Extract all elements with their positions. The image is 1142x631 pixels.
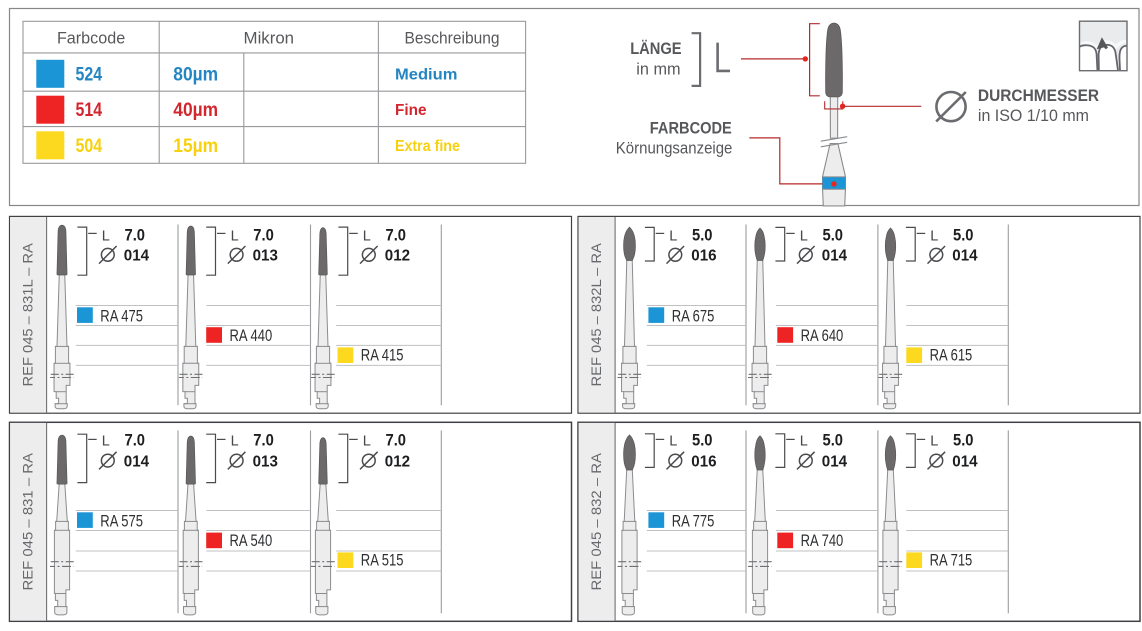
svg-text:RA 515: RA 515 xyxy=(361,550,404,569)
svg-text:016: 016 xyxy=(691,248,716,265)
svg-text:5.0: 5.0 xyxy=(953,431,974,449)
svg-text:013: 013 xyxy=(253,453,278,470)
svg-text:L: L xyxy=(102,433,110,449)
svg-text:504: 504 xyxy=(76,135,103,157)
svg-text:Körnungsanzeige: Körnungsanzeige xyxy=(616,140,733,158)
svg-text:RA 775: RA 775 xyxy=(672,511,715,530)
svg-text:Fine: Fine xyxy=(395,102,427,119)
svg-text:Extra fine: Extra fine xyxy=(395,138,460,155)
svg-text:L: L xyxy=(930,433,938,449)
svg-text:REF 045 – 832L – RA: REF 045 – 832L – RA xyxy=(589,242,604,386)
svg-text:514: 514 xyxy=(76,99,103,121)
svg-text:5.0: 5.0 xyxy=(692,226,713,244)
svg-text:FARBCODE: FARBCODE xyxy=(650,120,732,138)
svg-text:L: L xyxy=(363,433,371,449)
svg-text:5.0: 5.0 xyxy=(692,431,713,449)
svg-text:L: L xyxy=(800,228,808,244)
svg-text:L: L xyxy=(102,228,110,244)
svg-text:Mikron: Mikron xyxy=(244,30,295,48)
svg-text:L: L xyxy=(669,228,677,244)
svg-text:7.0: 7.0 xyxy=(125,431,146,449)
svg-text:Farbcode: Farbcode xyxy=(57,30,125,48)
svg-text:014: 014 xyxy=(822,453,847,470)
svg-text:016: 016 xyxy=(691,453,716,470)
svg-text:RA 575: RA 575 xyxy=(100,511,143,530)
svg-text:5.0: 5.0 xyxy=(823,226,844,244)
svg-text:014: 014 xyxy=(124,453,149,470)
svg-text:RA 475: RA 475 xyxy=(100,306,143,325)
svg-text:RA 675: RA 675 xyxy=(672,306,715,325)
svg-text:15µm: 15µm xyxy=(173,135,218,157)
svg-text:7.0: 7.0 xyxy=(125,226,146,244)
svg-text:L: L xyxy=(800,433,808,449)
svg-text:40µm: 40µm xyxy=(173,99,218,121)
svg-text:5.0: 5.0 xyxy=(953,226,974,244)
svg-text:RA 640: RA 640 xyxy=(801,326,844,345)
svg-text:REF 045 – 832 – RA: REF 045 – 832 – RA xyxy=(589,452,604,590)
svg-text:013: 013 xyxy=(253,248,278,265)
svg-text:Beschreibung: Beschreibung xyxy=(405,30,500,48)
svg-text:524: 524 xyxy=(76,63,103,85)
svg-text:DURCHMESSER: DURCHMESSER xyxy=(978,87,1099,105)
svg-text:L: L xyxy=(930,228,938,244)
svg-text:RA 615: RA 615 xyxy=(930,346,973,365)
svg-text:RA 715: RA 715 xyxy=(930,550,973,569)
svg-text:RA 740: RA 740 xyxy=(801,531,844,550)
svg-text:012: 012 xyxy=(385,248,410,265)
svg-text:014: 014 xyxy=(952,248,977,265)
svg-text:014: 014 xyxy=(952,453,977,470)
svg-text:Medium: Medium xyxy=(395,66,457,83)
svg-text:in mm: in mm xyxy=(636,60,680,78)
svg-text:RA 415: RA 415 xyxy=(361,346,404,365)
svg-text:LÄNGE: LÄNGE xyxy=(630,40,681,58)
svg-text:in ISO 1/10 mm: in ISO 1/10 mm xyxy=(978,107,1089,125)
svg-text:7.0: 7.0 xyxy=(386,226,407,244)
svg-text:80µm: 80µm xyxy=(173,63,218,85)
svg-text:7.0: 7.0 xyxy=(253,226,273,244)
svg-text:L: L xyxy=(231,228,239,244)
svg-text:L: L xyxy=(363,228,371,244)
svg-text:RA 440: RA 440 xyxy=(230,326,273,345)
svg-text:REF 045 – 831 – RA: REF 045 – 831 – RA xyxy=(21,452,36,590)
svg-text:RA 540: RA 540 xyxy=(230,531,273,550)
svg-text:014: 014 xyxy=(124,248,149,265)
svg-text:7.0: 7.0 xyxy=(253,431,273,449)
svg-text:012: 012 xyxy=(385,453,410,470)
svg-text:5.0: 5.0 xyxy=(823,431,844,449)
svg-text:L: L xyxy=(231,433,239,449)
svg-text:REF 045 – 831L – RA: REF 045 – 831L – RA xyxy=(21,242,36,386)
svg-text:7.0: 7.0 xyxy=(386,431,407,449)
svg-text:L: L xyxy=(669,433,677,449)
svg-text:014: 014 xyxy=(822,248,847,265)
